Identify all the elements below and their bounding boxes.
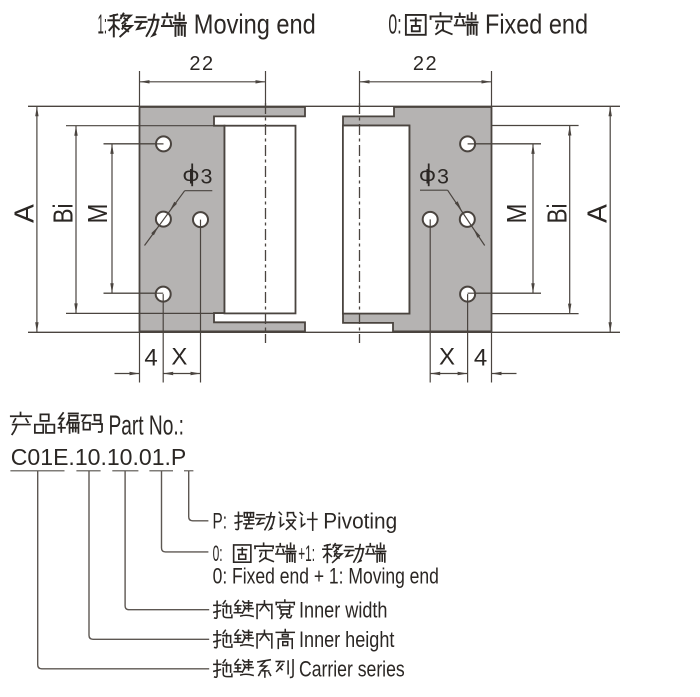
- svg-text:Part No.:: Part No.:: [109, 410, 185, 441]
- svg-text:0: Fixed end + 1: Moving end: 0: Fixed end + 1: Moving end: [213, 563, 439, 588]
- svg-text:4: 4: [474, 344, 487, 371]
- svg-text:Bi: Bi: [48, 204, 79, 224]
- svg-text:C01E.10.10.01.P: C01E.10.10.01.P: [11, 444, 187, 470]
- svg-text:Pivoting: Pivoting: [323, 509, 397, 534]
- svg-text:4: 4: [144, 344, 157, 371]
- svg-text:M: M: [82, 204, 113, 224]
- svg-text:Moving end: Moving end: [194, 9, 316, 40]
- svg-text:Φ3: Φ3: [419, 165, 450, 189]
- svg-text:Carrier series: Carrier series: [299, 657, 405, 682]
- svg-text:X: X: [171, 344, 187, 371]
- svg-text:0:: 0:: [388, 9, 401, 40]
- svg-text:0:: 0:: [213, 541, 223, 566]
- svg-text:M: M: [501, 204, 532, 224]
- svg-text:Φ3: Φ3: [182, 165, 213, 189]
- svg-text:+1:: +1:: [298, 541, 315, 566]
- svg-text:Bi: Bi: [542, 204, 573, 224]
- svg-text:Fixed end: Fixed end: [485, 9, 588, 40]
- svg-text:A: A: [9, 204, 40, 223]
- svg-text:P:: P:: [213, 509, 228, 534]
- svg-text:A: A: [582, 204, 613, 223]
- svg-text:X: X: [439, 344, 455, 371]
- svg-text:Inner height: Inner height: [299, 627, 394, 652]
- svg-text:22: 22: [189, 53, 214, 75]
- svg-text:22: 22: [413, 53, 438, 75]
- svg-text:Inner width: Inner width: [299, 598, 388, 623]
- svg-text:1:: 1:: [98, 9, 108, 40]
